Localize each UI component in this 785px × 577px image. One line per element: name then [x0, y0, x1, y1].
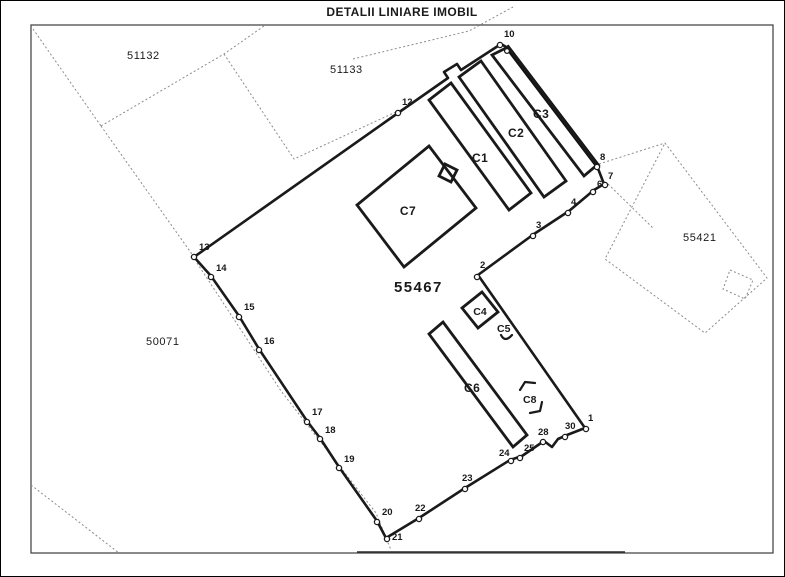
building-c4-label: C4 — [473, 306, 487, 318]
boundary-point-marker — [384, 536, 389, 541]
boundary-point-label: 1 — [588, 413, 594, 424]
boundary-point-label: 7 — [608, 171, 613, 182]
boundary-point-label: 30 — [565, 421, 576, 432]
boundary-point-label: 12 — [402, 97, 413, 108]
boundary-point-label: 6 — [597, 179, 602, 190]
boundary-point-label: 16 — [264, 336, 275, 347]
boundary-point-marker — [497, 42, 502, 47]
building-c7-label: C7 — [400, 204, 416, 218]
boundary-point-marker — [395, 110, 400, 115]
building-c1-label: C1 — [472, 151, 488, 165]
boundary-point-marker — [256, 347, 261, 352]
boundary-point-label: 18 — [325, 425, 336, 436]
building-c5-label: C5 — [497, 323, 511, 335]
boundary-point-label: 24 — [499, 448, 510, 459]
boundary-point-label: 10 — [504, 29, 515, 40]
parcel-line — [31, 485, 119, 553]
building-c8-label: C8 — [523, 394, 537, 406]
boundary-point-marker — [374, 519, 379, 524]
boundary-point-label: 20 — [382, 507, 393, 518]
boundary-point-label: 2 — [480, 260, 485, 271]
boundary-point-marker — [236, 314, 241, 319]
boundary-point-label: 4 — [571, 197, 577, 208]
parcel-line — [33, 29, 101, 126]
parcel-line — [101, 126, 194, 257]
building-c3-label: C3 — [533, 107, 549, 121]
parcel-55421-label: 55421 — [683, 232, 717, 244]
page-title: DETALII LINIARE IMOBIL — [326, 5, 477, 19]
boundary-point-marker — [474, 274, 479, 279]
boundary-point-marker — [562, 434, 567, 439]
building-c7-outline — [357, 146, 476, 267]
boundary-point-marker — [583, 426, 588, 431]
parcel-labels: 51132 51133 55421 50071 55467 — [127, 50, 717, 348]
cadastral-sketch-page: DETALII LINIARE IMOBIL C1 — [0, 0, 785, 577]
parcel-51132-label: 51132 — [127, 50, 160, 62]
boundary-point-marker — [304, 419, 309, 424]
boundary-point-label: 17 — [312, 407, 323, 418]
boundary-point-label: 22 — [415, 503, 426, 514]
boundary-point-marker — [602, 182, 607, 187]
boundary-point-marker — [208, 274, 213, 279]
boundary-point-label: 8 — [600, 152, 605, 163]
boundary-point-marker — [565, 210, 570, 215]
boundary-point-marker — [594, 164, 599, 169]
boundary-point-label: 13 — [199, 242, 210, 253]
boundary-point-marker — [416, 516, 421, 521]
c8-bracket-upper-icon — [520, 382, 535, 390]
cadastral-sketch: DETALII LINIARE IMOBIL C1 — [1, 1, 784, 576]
boundary-point-marker — [540, 439, 545, 444]
boundary-point-marker — [336, 465, 341, 470]
c5-pointer-icon — [501, 335, 512, 339]
boundary-point-marker — [505, 49, 510, 54]
boundary-point-label: 21 — [392, 532, 403, 543]
boundary-point-label: 23 — [462, 473, 473, 484]
boundary-point-label: 15 — [244, 302, 255, 313]
building-c2-label: C2 — [508, 126, 524, 140]
boundary-point-marker — [590, 189, 595, 194]
building-c1-outline — [429, 83, 531, 210]
parcel-line — [608, 184, 653, 228]
boundary-point-label: 25 — [524, 443, 535, 454]
boundary-point-label: 3 — [536, 220, 541, 231]
parcel-51133-label: 51133 — [330, 64, 363, 76]
parcel-line — [224, 54, 398, 159]
parcel-line — [101, 26, 264, 126]
boundary-point-marker — [530, 233, 535, 238]
building-c6-label: C6 — [464, 381, 480, 395]
parcel-55467-label: 55467 — [394, 279, 443, 296]
boundary-point-label: 19 — [344, 454, 355, 465]
boundary-point-marker — [191, 254, 196, 259]
boundary-point-label: 14 — [216, 263, 227, 274]
parcel-line — [197, 263, 391, 550]
parcel-line — [599, 143, 665, 164]
boundary-point-marker — [517, 455, 522, 460]
parcel-50071-label: 50071 — [146, 336, 180, 348]
boundary-point-marker — [462, 486, 467, 491]
boundary-point-marker — [508, 458, 513, 463]
boundary-point-label: 28 — [538, 427, 549, 438]
boundary-point-marker — [317, 436, 322, 441]
